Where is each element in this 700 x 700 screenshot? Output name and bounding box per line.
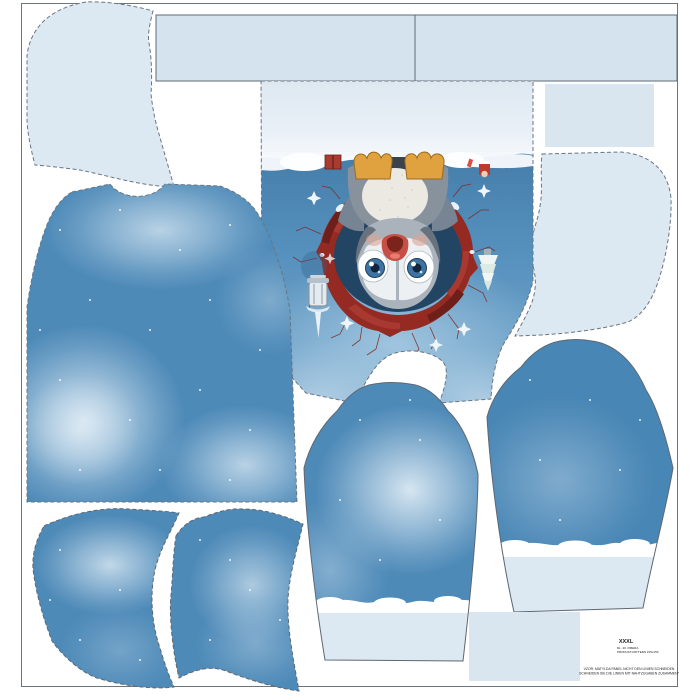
svg-text:XXXL: XXXL bbox=[619, 639, 634, 645]
svg-text:VZOR: MATYLDA PANEL NICHT DEN: VZOR: MATYLDA PANEL NICHT DEN LINIEN SCH… bbox=[584, 667, 675, 671]
svg-text:PRODUKT-PATTERN 155x150: PRODUKT-PATTERN 155x150 bbox=[617, 650, 659, 654]
svg-text:SCHNEIDEN SIE DIE LINIEN MIT N: SCHNEIDEN SIE DIE LINIEN MIT NAHTZUGABEN… bbox=[579, 672, 679, 676]
